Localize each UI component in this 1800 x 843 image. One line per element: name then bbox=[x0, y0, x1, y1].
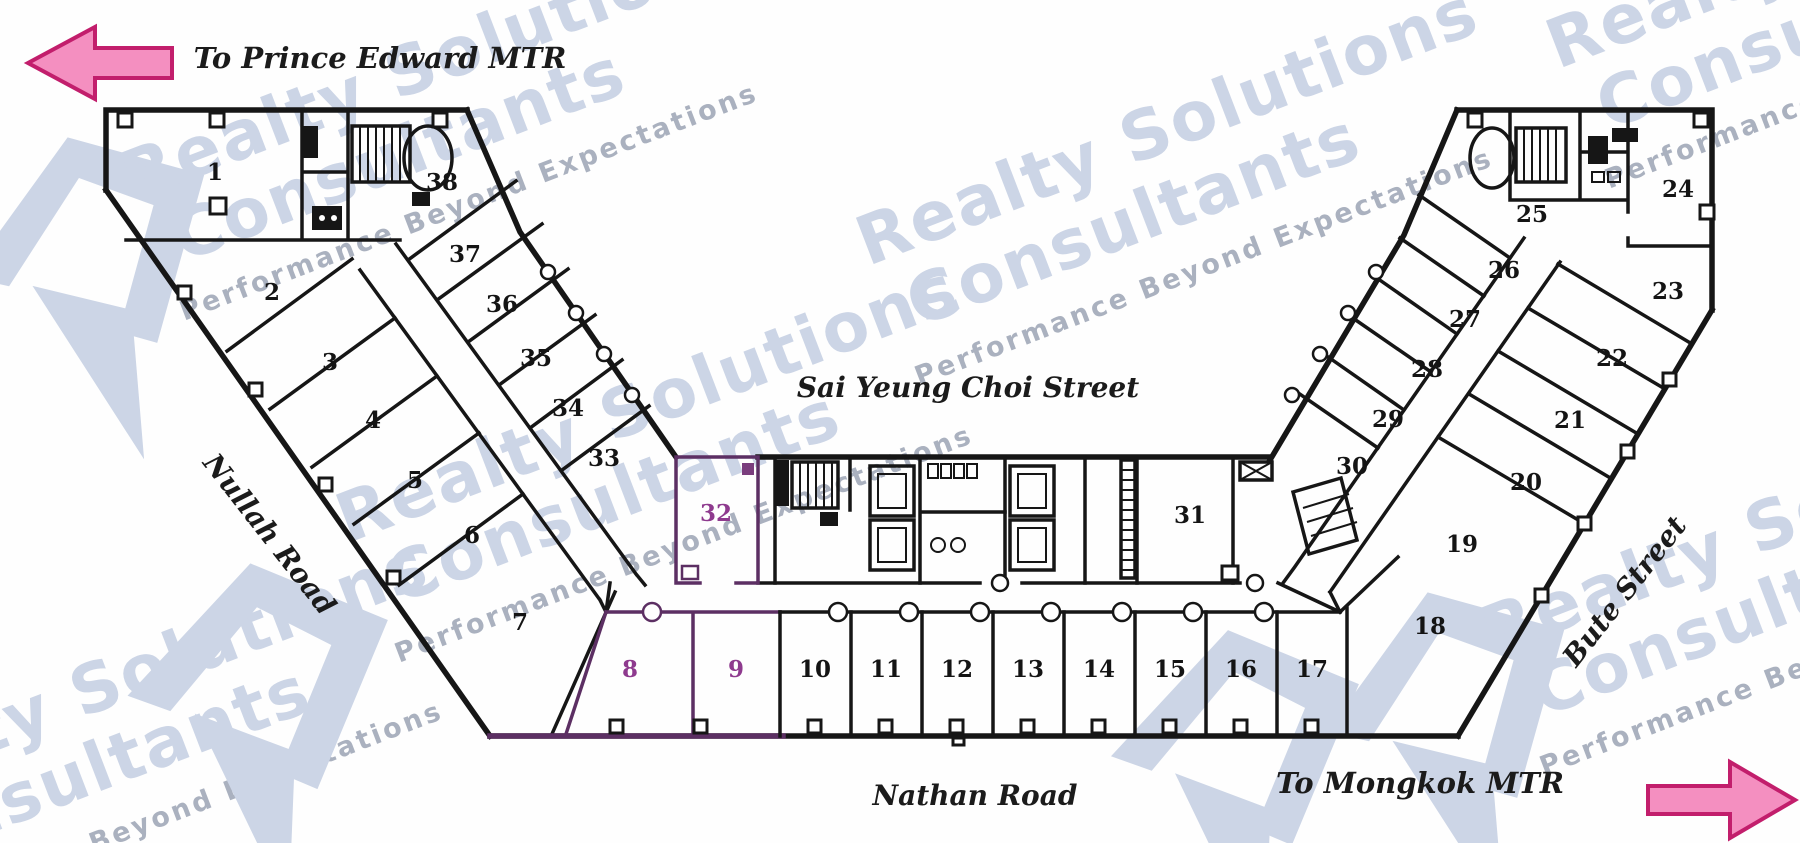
unit-3-label: 3 bbox=[322, 349, 338, 376]
unit-2-label: 2 bbox=[264, 279, 280, 306]
street-label-sai-yeung-choi: Sai Yeung Choi Street bbox=[797, 371, 1139, 404]
unit32-marker bbox=[742, 463, 754, 475]
unit-18-label: 18 bbox=[1414, 613, 1446, 640]
left-arrow-icon bbox=[28, 27, 172, 99]
street-label-nathan-road: Nathan Road bbox=[872, 779, 1078, 812]
floor-plan-svg: Realty Solutions Consultants Performance… bbox=[0, 0, 1800, 843]
unit-36-label: 36 bbox=[486, 291, 518, 318]
prince-edward-label: To Prince Edward MTR bbox=[194, 41, 567, 75]
unit-10-label: 10 bbox=[799, 656, 831, 683]
unit-21-label: 21 bbox=[1554, 407, 1586, 434]
unit-14-label: 14 bbox=[1083, 656, 1115, 683]
unit-17-label: 17 bbox=[1296, 656, 1328, 683]
unit-19-label: 19 bbox=[1446, 531, 1478, 558]
unit-16-label: 16 bbox=[1225, 656, 1257, 683]
unit-30-label: 30 bbox=[1336, 453, 1368, 480]
unit-38-label: 38 bbox=[426, 169, 458, 196]
unit-22-label: 22 bbox=[1596, 345, 1628, 372]
floor-plan-canvas: Realty Solutions Consultants Performance… bbox=[0, 0, 1800, 843]
unit-13-label: 13 bbox=[1012, 656, 1044, 683]
unit-7-label: 7 bbox=[512, 609, 528, 636]
unit-37-label: 37 bbox=[449, 241, 481, 268]
unit-33-label: 33 bbox=[588, 445, 620, 472]
unit-20-label: 20 bbox=[1510, 469, 1542, 496]
unit-26-label: 26 bbox=[1488, 257, 1520, 284]
unit-35-label: 35 bbox=[520, 345, 552, 372]
unit-32-label: 32 bbox=[700, 500, 732, 527]
unit-1-label: 1 bbox=[207, 159, 223, 186]
mongkok-label: To Mongkok MTR bbox=[1276, 766, 1564, 800]
unit-15-label: 15 bbox=[1154, 656, 1186, 683]
unit-34-label: 34 bbox=[552, 395, 584, 422]
unit-5-label: 5 bbox=[407, 467, 423, 494]
right-arrow-icon bbox=[1648, 762, 1795, 838]
unit-8-label: 8 bbox=[622, 656, 638, 683]
unit-29-label: 29 bbox=[1372, 406, 1404, 433]
unit-24-label: 24 bbox=[1662, 176, 1694, 203]
unit-23-label: 23 bbox=[1652, 278, 1684, 305]
unit-9-label: 9 bbox=[728, 656, 744, 683]
unit-6-label: 6 bbox=[464, 522, 480, 549]
unit-4-label: 4 bbox=[365, 407, 381, 434]
unit-31-label: 31 bbox=[1174, 502, 1206, 529]
unit-25-label: 25 bbox=[1516, 201, 1548, 228]
unit-28-label: 28 bbox=[1411, 356, 1443, 383]
unit-12-label: 12 bbox=[941, 656, 973, 683]
unit-11-label: 11 bbox=[870, 656, 902, 683]
unit-27-label: 27 bbox=[1449, 306, 1481, 333]
